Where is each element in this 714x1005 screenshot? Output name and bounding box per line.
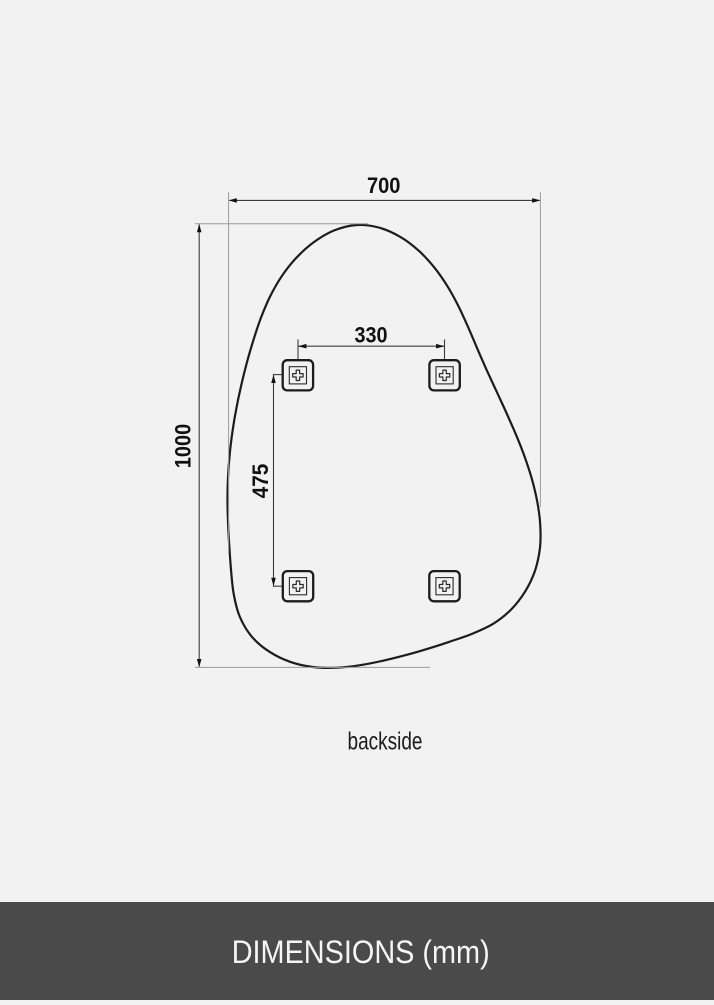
svg-text:475: 475 <box>248 464 273 499</box>
svg-text:1000: 1000 <box>171 424 196 469</box>
svg-text:700: 700 <box>367 173 401 198</box>
svg-text:DIMENSIONS (mm): DIMENSIONS (mm) <box>232 934 490 970</box>
svg-text:backside: backside <box>348 728 423 756</box>
svg-text:330: 330 <box>355 323 388 348</box>
